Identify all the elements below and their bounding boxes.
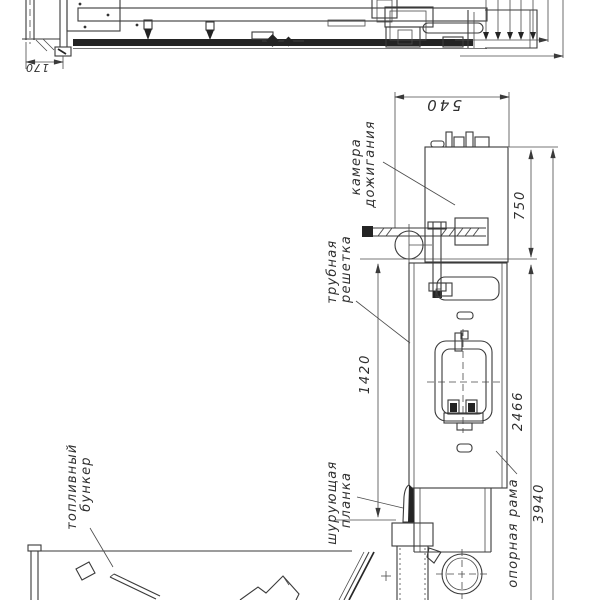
part-labels: камера дожигания трубная решетка топливн… xyxy=(65,120,521,587)
bracket-tab xyxy=(427,548,441,563)
dimension-3940: 3940 xyxy=(532,149,553,600)
leader-line xyxy=(356,301,410,343)
label-fuel-bunker: топливный бункер xyxy=(65,438,113,567)
dimensions: 750 2466 3940 1420 xyxy=(335,147,558,600)
dim-750-text: 750 xyxy=(513,190,528,220)
chamber-top-fittings xyxy=(431,132,489,147)
end-bracket xyxy=(485,10,537,48)
label-combustion-chamber: камера дожигания xyxy=(349,120,455,208)
label-fuel-bunker-line2: бункер xyxy=(79,456,94,512)
bunker-flap xyxy=(76,562,95,580)
fuel-bunker-drawing xyxy=(28,545,374,600)
dim-2466-text: 2466 xyxy=(511,391,526,431)
svg-text:шурующая планка: шурующая планка xyxy=(325,455,354,544)
feeder-column xyxy=(381,523,441,600)
label-stoker-plank-line1: шурующая xyxy=(325,461,340,545)
label-stoker-plank-line2: планка xyxy=(339,472,354,528)
label-chamber-line1: камера xyxy=(349,138,364,195)
stoker-plank-element xyxy=(403,485,414,522)
label-fuel-bunker-line1: топливный xyxy=(65,443,80,529)
combustion-chamber xyxy=(425,132,508,262)
bunker-chute-bar xyxy=(110,577,156,599)
label-tube-grate-line2: решетка xyxy=(339,235,354,304)
auger-lines xyxy=(339,552,374,600)
air-slot-lower xyxy=(457,444,472,452)
air-slot-upper xyxy=(457,312,473,319)
label-chamber-line2: дожигания xyxy=(363,120,378,208)
furnace-body xyxy=(409,263,507,552)
dim-1420-text: 1420 xyxy=(358,354,373,394)
dim-170-text: 170 xyxy=(25,61,49,74)
label-tube-grate: трубная решетка xyxy=(325,234,410,343)
blower-flange xyxy=(436,549,489,599)
feeder-block xyxy=(392,523,433,546)
svg-text:трубная решетка: трубная решетка xyxy=(325,234,354,304)
bolt-dots xyxy=(79,3,139,29)
burner-assembly xyxy=(362,222,486,298)
label-support-frame: опорная рама xyxy=(496,451,521,588)
elevation-view: 540 xyxy=(362,92,509,600)
top-view-left-assembly xyxy=(22,0,71,56)
tube-end-cap xyxy=(362,226,373,237)
bunker-post-cap xyxy=(28,545,41,551)
drawing-sheet: 170 540 xyxy=(0,0,600,600)
top-view-plate xyxy=(67,0,120,31)
lower-door xyxy=(427,329,501,433)
leader-line xyxy=(383,162,455,205)
dimension-750: 750 xyxy=(513,150,531,257)
dimension-540: 540 xyxy=(395,92,509,228)
svg-text:камера дожигания: камера дожигания xyxy=(349,120,378,208)
fuel-pile xyxy=(240,576,299,600)
top-view: 170 xyxy=(22,0,563,74)
dimension-1420: 1420 xyxy=(358,264,378,517)
leader-line xyxy=(357,497,403,508)
label-tube-grate-line1: трубная xyxy=(325,240,340,304)
label-support-frame-text: опорная рама xyxy=(506,478,521,587)
dim-3940-text: 3940 xyxy=(532,483,547,523)
label-stoker-plank: шурующая планка xyxy=(325,455,403,544)
svg-text:топливный бункер: топливный бункер xyxy=(65,438,94,530)
furnace-technical-drawing: 170 540 xyxy=(0,0,600,600)
leader-line xyxy=(90,528,113,567)
top-view-dimension-stack xyxy=(455,0,563,58)
dim-540-text: 540 xyxy=(424,96,462,114)
